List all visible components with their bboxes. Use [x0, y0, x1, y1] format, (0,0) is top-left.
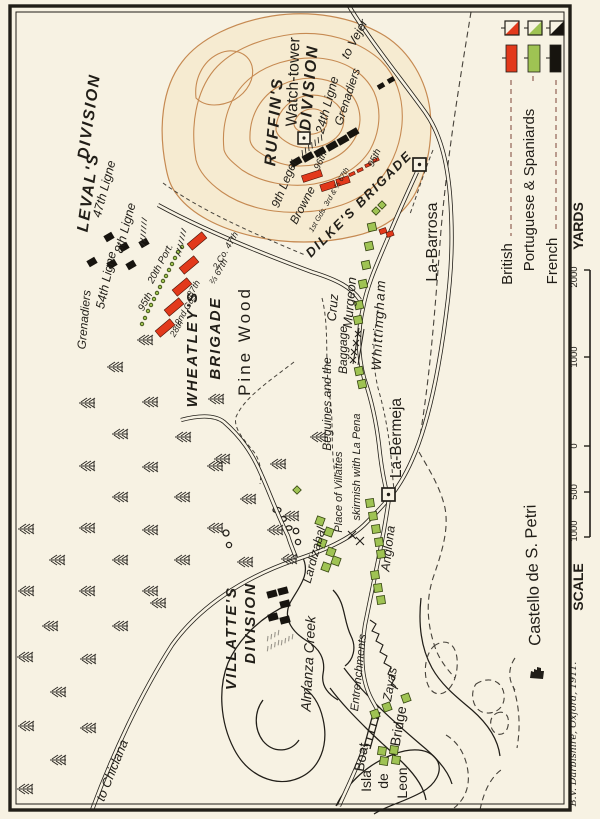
label-leon: Leon [394, 767, 410, 798]
label-skirmish-line2: skirmish with La Pena [351, 414, 363, 521]
watch-tower-icon [298, 132, 310, 144]
scale-tick-1000a: 1000 [569, 346, 580, 367]
battle-map-sheet: British Portuguese & Spaniards French YA… [0, 0, 600, 819]
cartographer-credit: B.V. Darbishire, Oxford, 1911. [568, 662, 579, 808]
label-cruz: Cruz [324, 293, 341, 322]
scale-tick-2000: 2000 [569, 266, 580, 287]
scale-tick-0: 0 [569, 443, 580, 448]
la-bermeja-icon [382, 488, 395, 501]
legend-label-french: French [544, 238, 561, 285]
label-la-bermeja: La-Bermeja [388, 398, 405, 478]
legend-label-spanish: Portuguese & Spaniards [521, 109, 538, 272]
la-barrosa-icon [413, 158, 426, 171]
label-beguines: Beguines and the [320, 357, 334, 451]
label-de: de [375, 773, 391, 789]
scale-tick-500: 500 [569, 484, 580, 500]
scale-tick-1000b: 1000 [569, 520, 580, 541]
scale-title: SCALE [570, 563, 586, 610]
legend-label-british: British [499, 243, 516, 285]
label-villattes-division: DIVISION [242, 582, 259, 664]
map-canvas: British Portuguese & Spaniards French YA… [0, 0, 600, 819]
label-villattes: VILLATTE'S [223, 586, 240, 690]
label-la-barrosa: La-Barrosa [424, 202, 441, 281]
label-skirmish-line1: Place of Villattes [333, 451, 345, 533]
label-baggage: Baggage [336, 326, 350, 374]
label-pine-wood: Pine Wood [235, 286, 254, 396]
scale-unit: YARDS [570, 202, 586, 250]
label-wheatleys-brigade: BRIGADE [207, 296, 224, 379]
label-isla: Isla [358, 770, 374, 792]
label-wheatleys: WHEATLEY'S [184, 291, 201, 408]
